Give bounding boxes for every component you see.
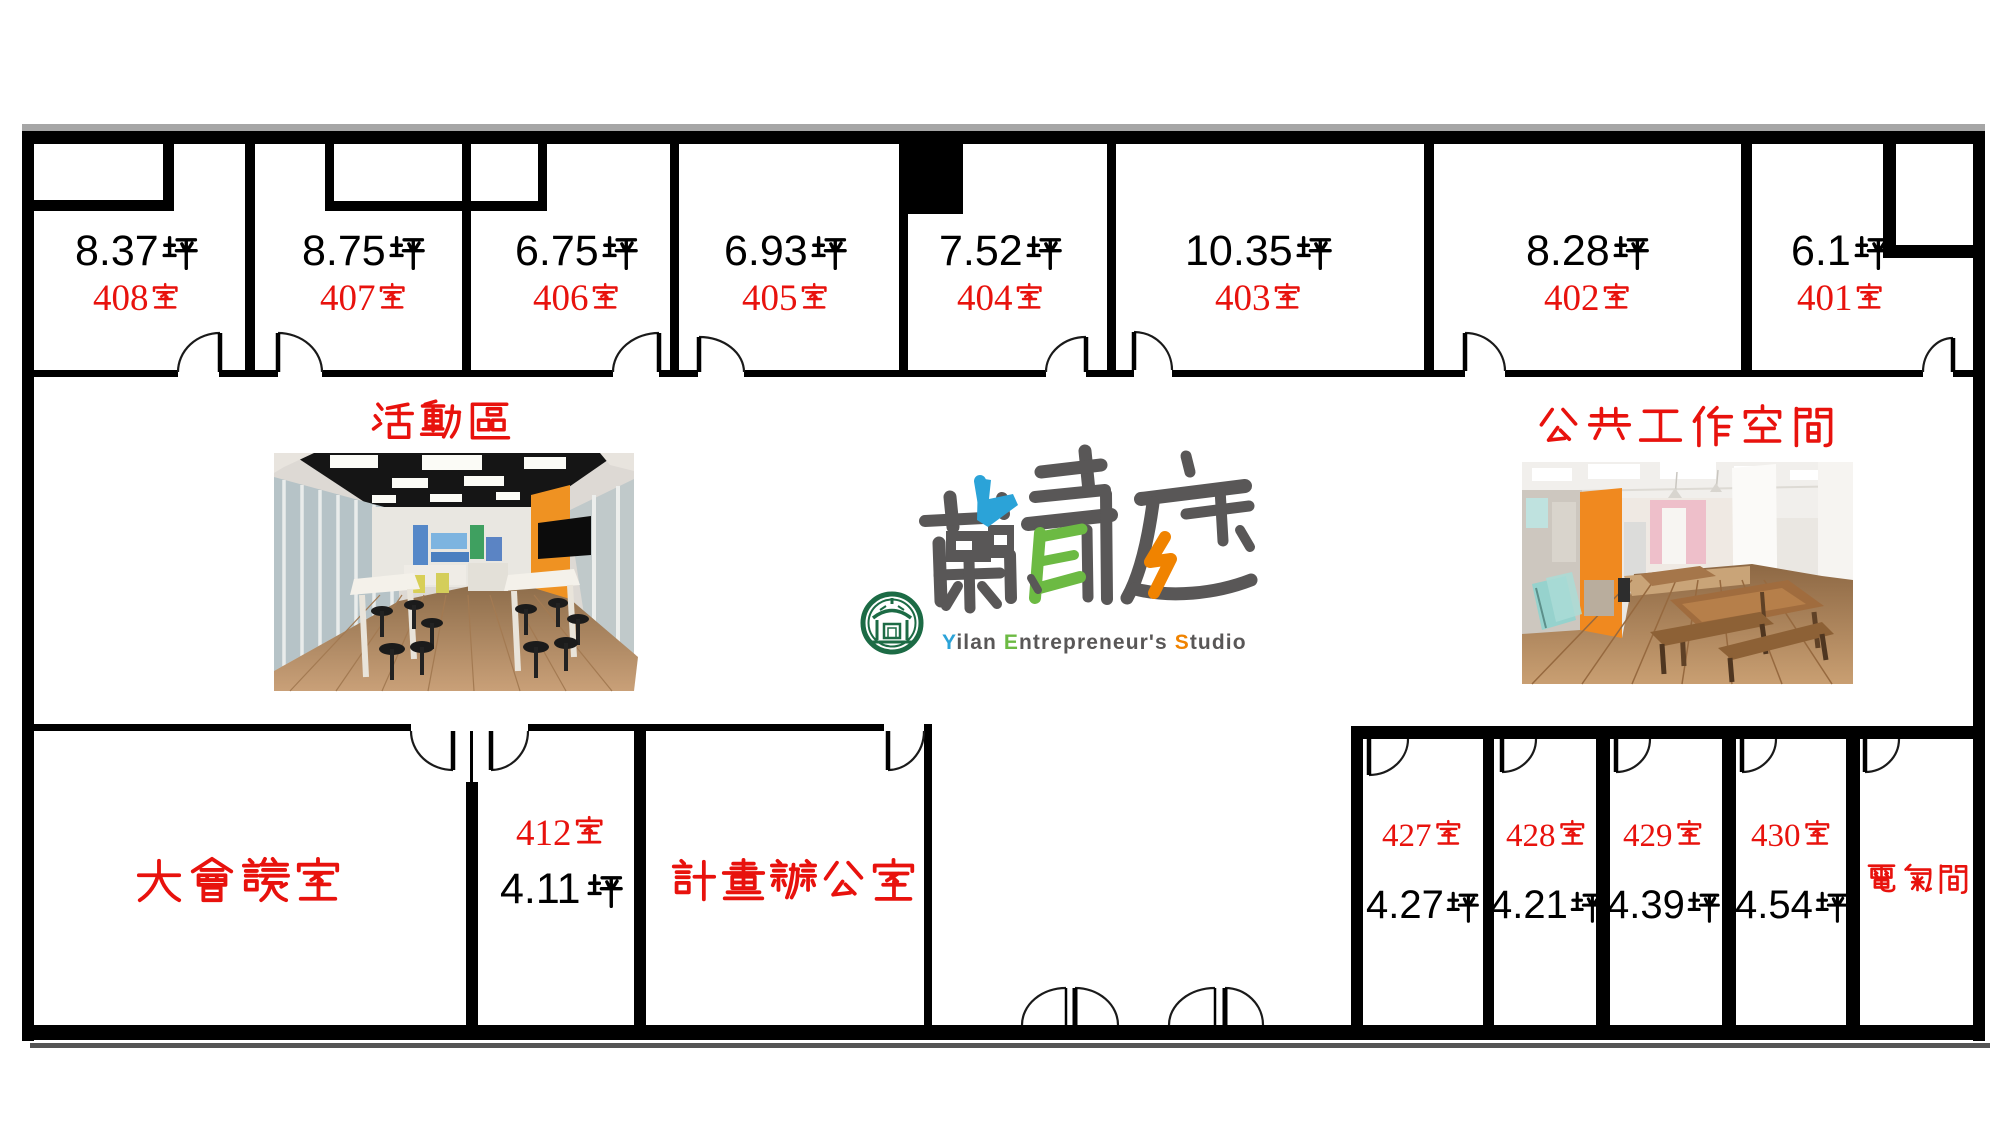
svg-text:401: 401 — [1797, 278, 1853, 319]
svg-text:4.27: 4.27 — [1366, 883, 1444, 927]
svg-text:430: 430 — [1751, 818, 1801, 854]
svg-text:Yilan Entrepreneur's Studio: Yilan Entrepreneur's Studio — [942, 631, 1247, 654]
svg-text:6.93: 6.93 — [724, 227, 808, 275]
svg-text:403: 403 — [1215, 278, 1271, 319]
svg-text:402: 402 — [1544, 278, 1600, 319]
svg-text:405: 405 — [742, 278, 798, 319]
svg-text:7.52: 7.52 — [939, 227, 1023, 275]
svg-text:404: 404 — [957, 278, 1013, 319]
svg-text:408: 408 — [93, 278, 149, 319]
svg-text:4.54: 4.54 — [1735, 883, 1813, 927]
svg-text:407: 407 — [320, 278, 376, 319]
svg-text:429: 429 — [1623, 818, 1673, 854]
svg-text:10.35: 10.35 — [1185, 227, 1293, 275]
svg-text:406: 406 — [533, 278, 589, 319]
svg-text:428: 428 — [1506, 818, 1556, 854]
svg-text:427: 427 — [1382, 818, 1432, 854]
svg-text:4.11: 4.11 — [500, 865, 581, 913]
svg-text:8.75: 8.75 — [302, 227, 386, 275]
svg-text:412: 412 — [516, 813, 572, 854]
svg-text:8.28: 8.28 — [1526, 227, 1610, 275]
svg-text:8.37: 8.37 — [75, 227, 159, 275]
svg-text:6.1: 6.1 — [1791, 227, 1851, 275]
svg-text:6.75: 6.75 — [515, 227, 599, 275]
svg-text:4.39: 4.39 — [1607, 883, 1685, 927]
svg-text:4.21: 4.21 — [1490, 883, 1568, 927]
